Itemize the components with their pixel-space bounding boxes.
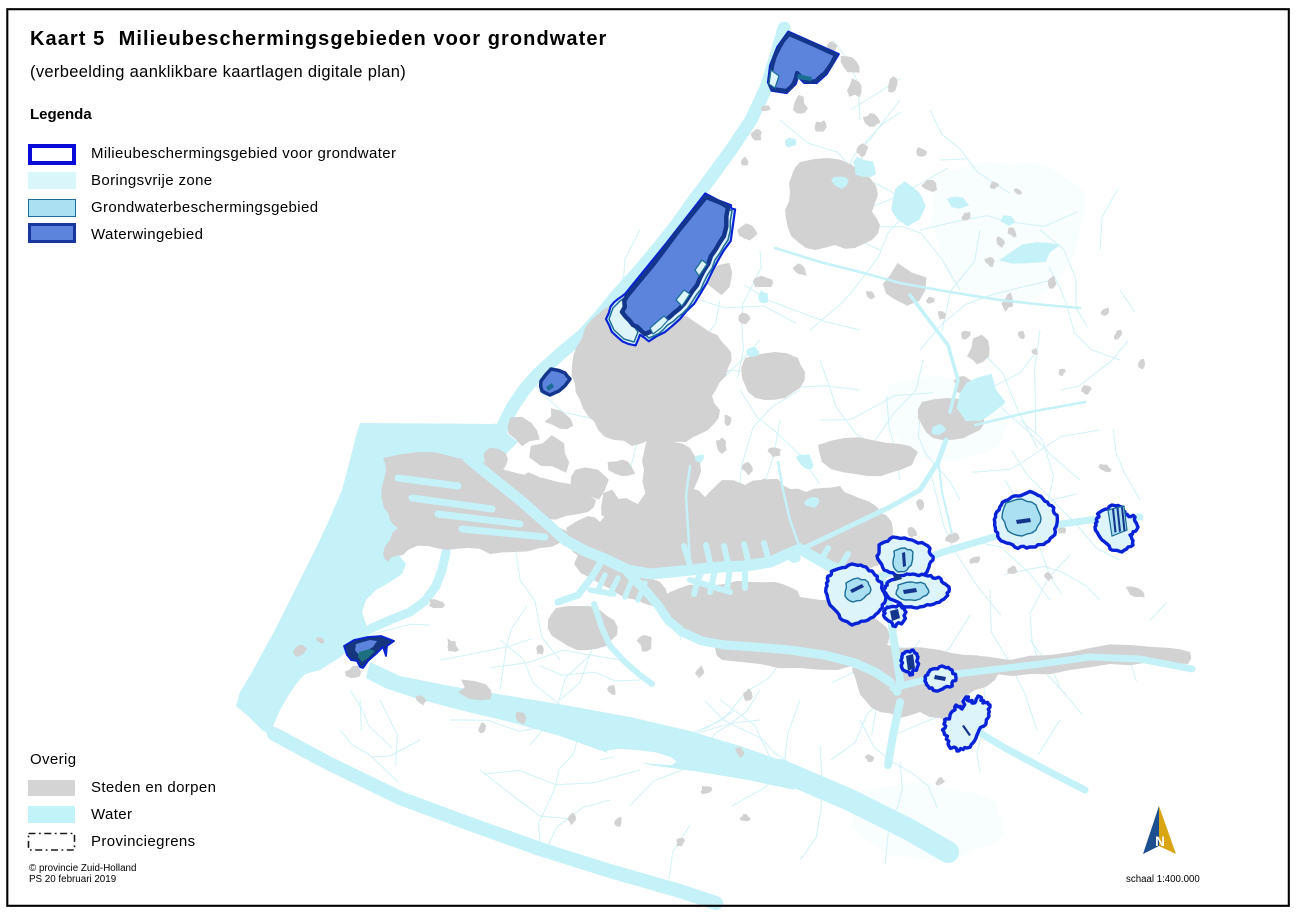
- svg-text:N: N: [1155, 834, 1165, 849]
